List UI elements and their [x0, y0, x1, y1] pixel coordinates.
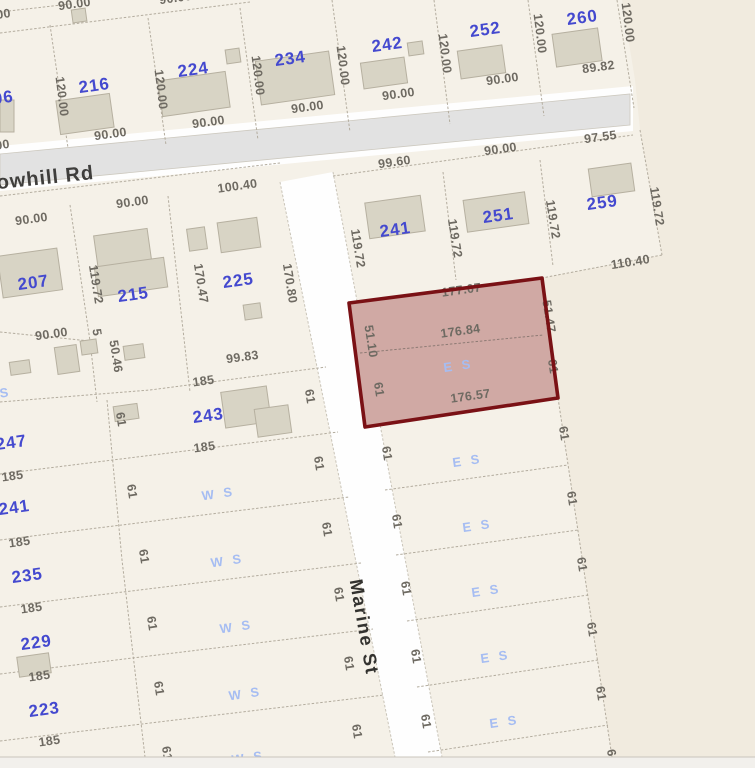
- parcel-number: 96: [0, 87, 15, 109]
- dimension-label: 61: [389, 513, 405, 530]
- dimension-label: 61: [418, 713, 434, 730]
- dimension-label: 61: [311, 455, 327, 472]
- dimension-label: 61: [379, 445, 395, 462]
- row-side-label: S: [0, 384, 12, 400]
- dimension-label: 61: [398, 580, 414, 597]
- dimension-label: 185: [1, 468, 25, 485]
- dimension-label: 61: [151, 680, 167, 697]
- parcel-map[interactable]: 90.000090.0090.00120.0090.00120.0090.001…: [0, 0, 755, 768]
- dimension-label: 61: [556, 425, 572, 442]
- dimension-label: 185: [193, 439, 217, 456]
- dimension-label: 185: [28, 668, 52, 685]
- dimension-label: 00: [0, 6, 12, 22]
- dimension-label: 61: [113, 411, 129, 428]
- dimension-label: 61: [593, 685, 609, 702]
- dimension-label: 61: [302, 388, 318, 405]
- dimension-label: 61: [584, 621, 600, 638]
- dimension-label: 61: [408, 648, 424, 665]
- dimension-label: 61: [331, 586, 347, 603]
- dimension-label: 61: [144, 615, 160, 632]
- highlighted-left-lower-dim: 61: [371, 381, 387, 398]
- map-bottom-strip: [0, 757, 755, 768]
- dimension-label: 185: [192, 373, 216, 390]
- dimension-label: 61: [574, 556, 590, 573]
- dimension-label: 185: [38, 733, 62, 750]
- dimension-label: 185: [8, 534, 32, 551]
- dimension-label: 61: [319, 521, 335, 538]
- dimension-label: 61: [349, 723, 365, 740]
- dimension-label: 61: [124, 483, 140, 500]
- dimension-label: 61: [564, 490, 580, 507]
- dimension-label: 61: [341, 655, 357, 672]
- dimension-label: 61: [136, 548, 152, 565]
- map-viewport: 90.000090.0090.00120.0090.00120.0090.001…: [0, 0, 755, 768]
- dimension-label: 185: [20, 600, 44, 617]
